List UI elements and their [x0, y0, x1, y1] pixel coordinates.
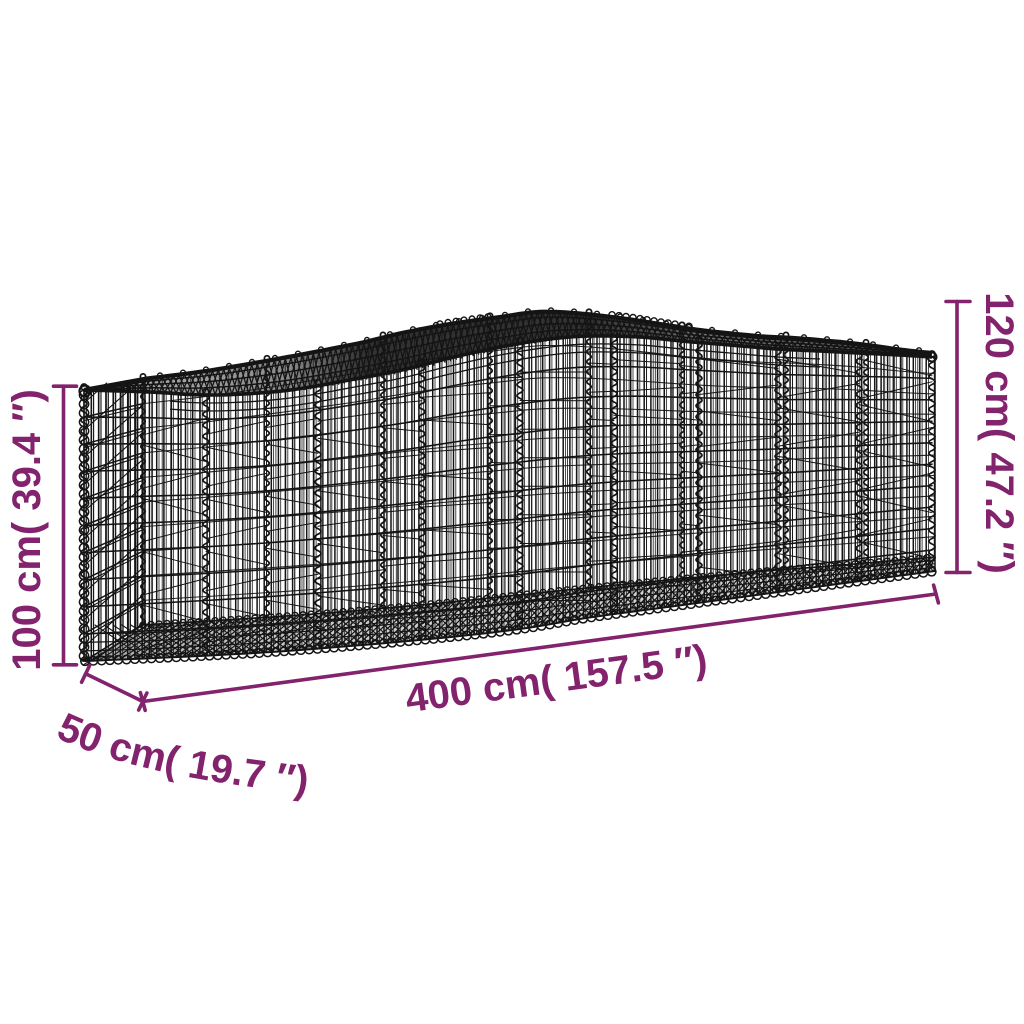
- svg-text:50 cm( 19.7 ″): 50 cm( 19.7 ″): [51, 705, 311, 803]
- svg-text:100 cm( 39.4 ″): 100 cm( 39.4 ″): [5, 389, 49, 671]
- svg-text:120 cm( 47.2 ″): 120 cm( 47.2 ″): [977, 292, 1021, 574]
- svg-text:400 cm( 157.5 ″): 400 cm( 157.5 ″): [403, 637, 710, 721]
